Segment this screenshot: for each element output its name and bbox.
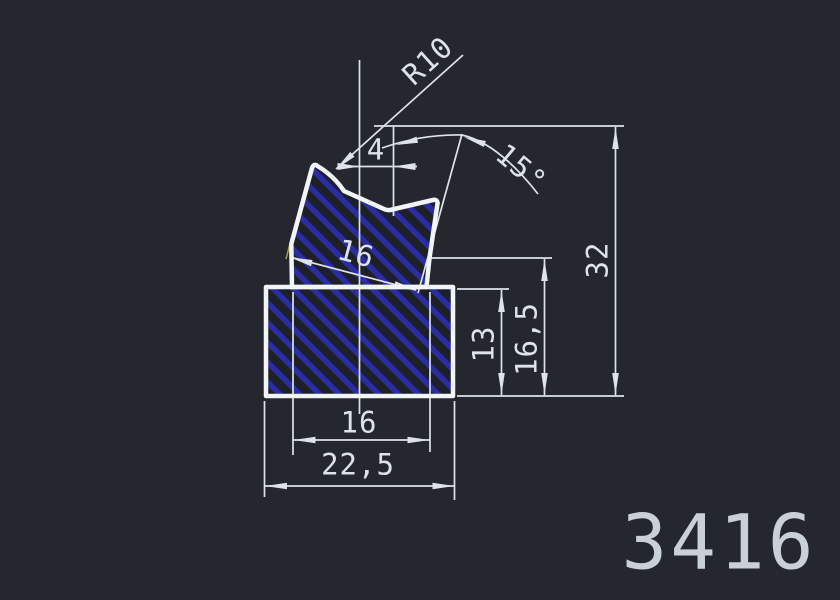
dim-angle-arrow-left <box>396 137 418 145</box>
dim-16-5-arrow-top <box>541 260 548 282</box>
part-number: 3416 <box>621 498 816 587</box>
dim-16-5-arrow-bottom <box>541 373 548 395</box>
dim-22-5-arrow-left <box>265 483 287 490</box>
dim-13-arrow-top <box>498 291 505 313</box>
cad-drawing-canvas: R10 4 15° 16 16 22,5 13 16,5 32 3416 <box>0 0 840 600</box>
dim-label-width-total: 22,5 <box>321 451 395 480</box>
dim-label-height-mid: 16,5 <box>513 302 542 376</box>
dim-label-height-total: 32 <box>584 242 613 279</box>
dim-label-width-tilted: 16 <box>334 235 377 273</box>
dim-4-arrow-right <box>394 163 416 170</box>
dim-label-width-inner: 16 <box>341 409 378 438</box>
dim-4-arrow-left <box>338 163 360 170</box>
dim-16-bottom-arrow-right <box>408 437 430 444</box>
dim-16-bottom-arrow-left <box>294 437 316 444</box>
dim-32-arrow-top <box>612 128 619 150</box>
radius-leader-line <box>336 55 463 169</box>
dim-13-arrow-bottom <box>498 373 505 395</box>
dim-32-arrow-bottom <box>612 373 619 395</box>
dim-22-5-arrow-right <box>433 483 455 490</box>
dim-label-width-top: 4 <box>367 136 385 165</box>
dim-label-height-base: 13 <box>470 326 499 363</box>
